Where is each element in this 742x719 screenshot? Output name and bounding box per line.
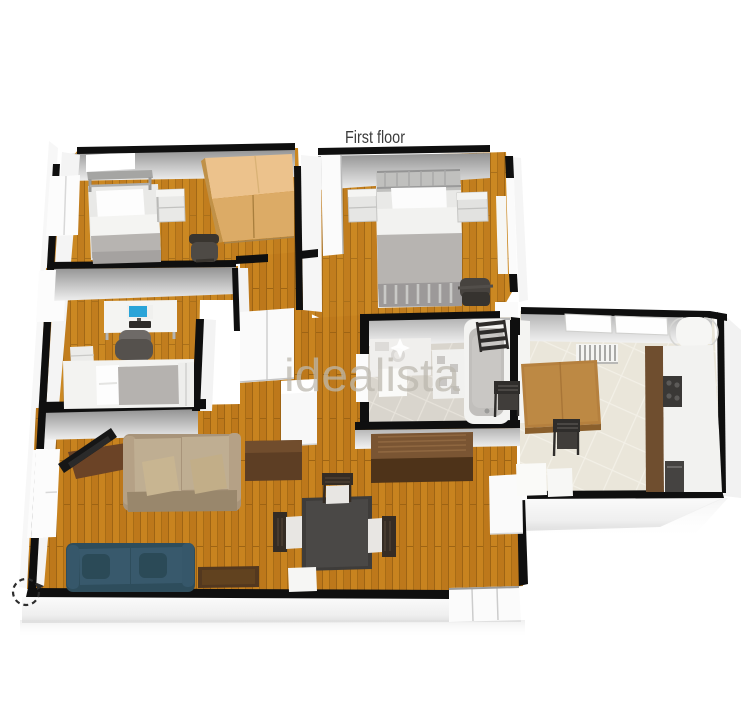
svg-text:First floor: First floor xyxy=(345,127,405,147)
svg-text:idealista: idealista xyxy=(284,349,460,401)
